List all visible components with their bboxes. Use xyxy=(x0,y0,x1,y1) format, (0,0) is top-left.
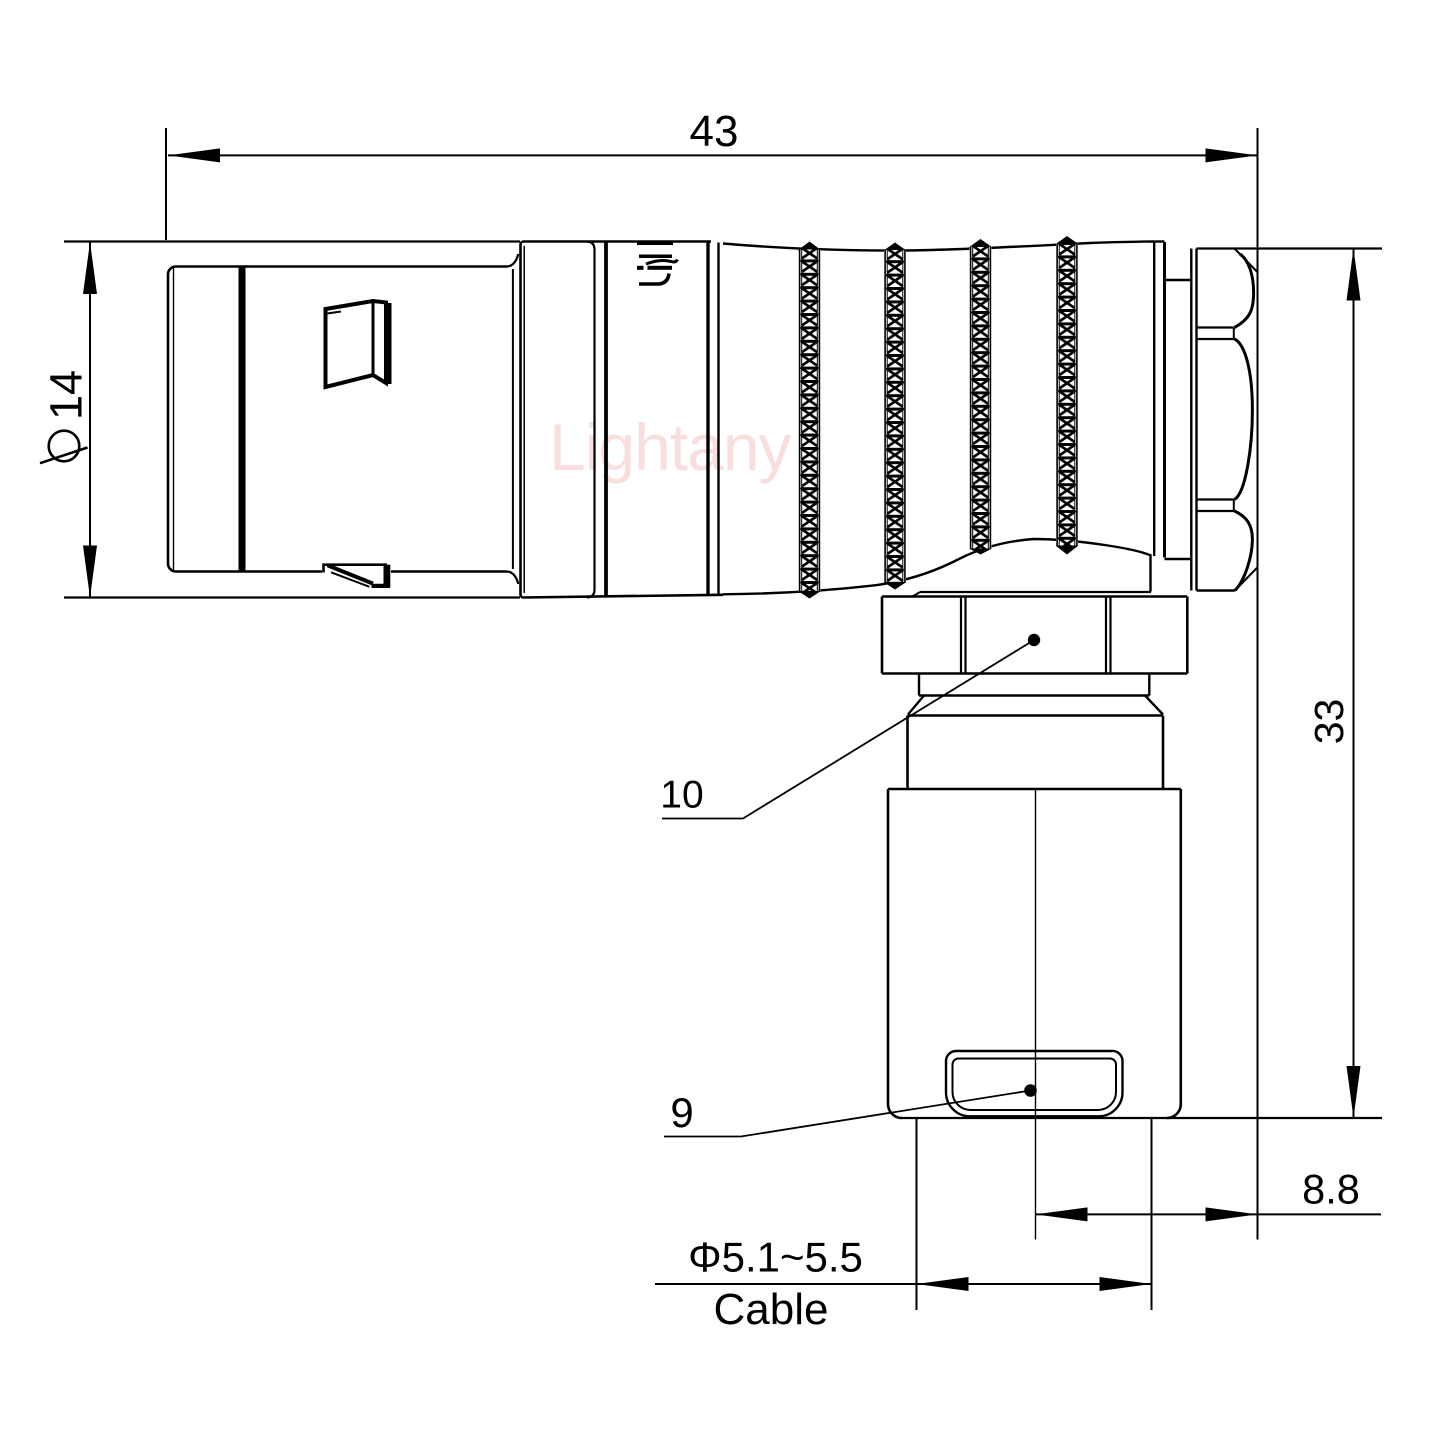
svg-text:43: 43 xyxy=(690,107,739,156)
svg-text:33: 33 xyxy=(1306,699,1352,745)
svg-text:Cable: Cable xyxy=(714,1285,829,1334)
svg-text:9: 9 xyxy=(670,1089,693,1136)
svg-text:10: 10 xyxy=(660,774,703,817)
svg-text:Lightany: Lightany xyxy=(549,410,792,484)
svg-text:14: 14 xyxy=(41,370,92,420)
svg-text:Φ5.1~5.5: Φ5.1~5.5 xyxy=(688,1234,863,1281)
svg-text:8.8: 8.8 xyxy=(1302,1166,1360,1213)
